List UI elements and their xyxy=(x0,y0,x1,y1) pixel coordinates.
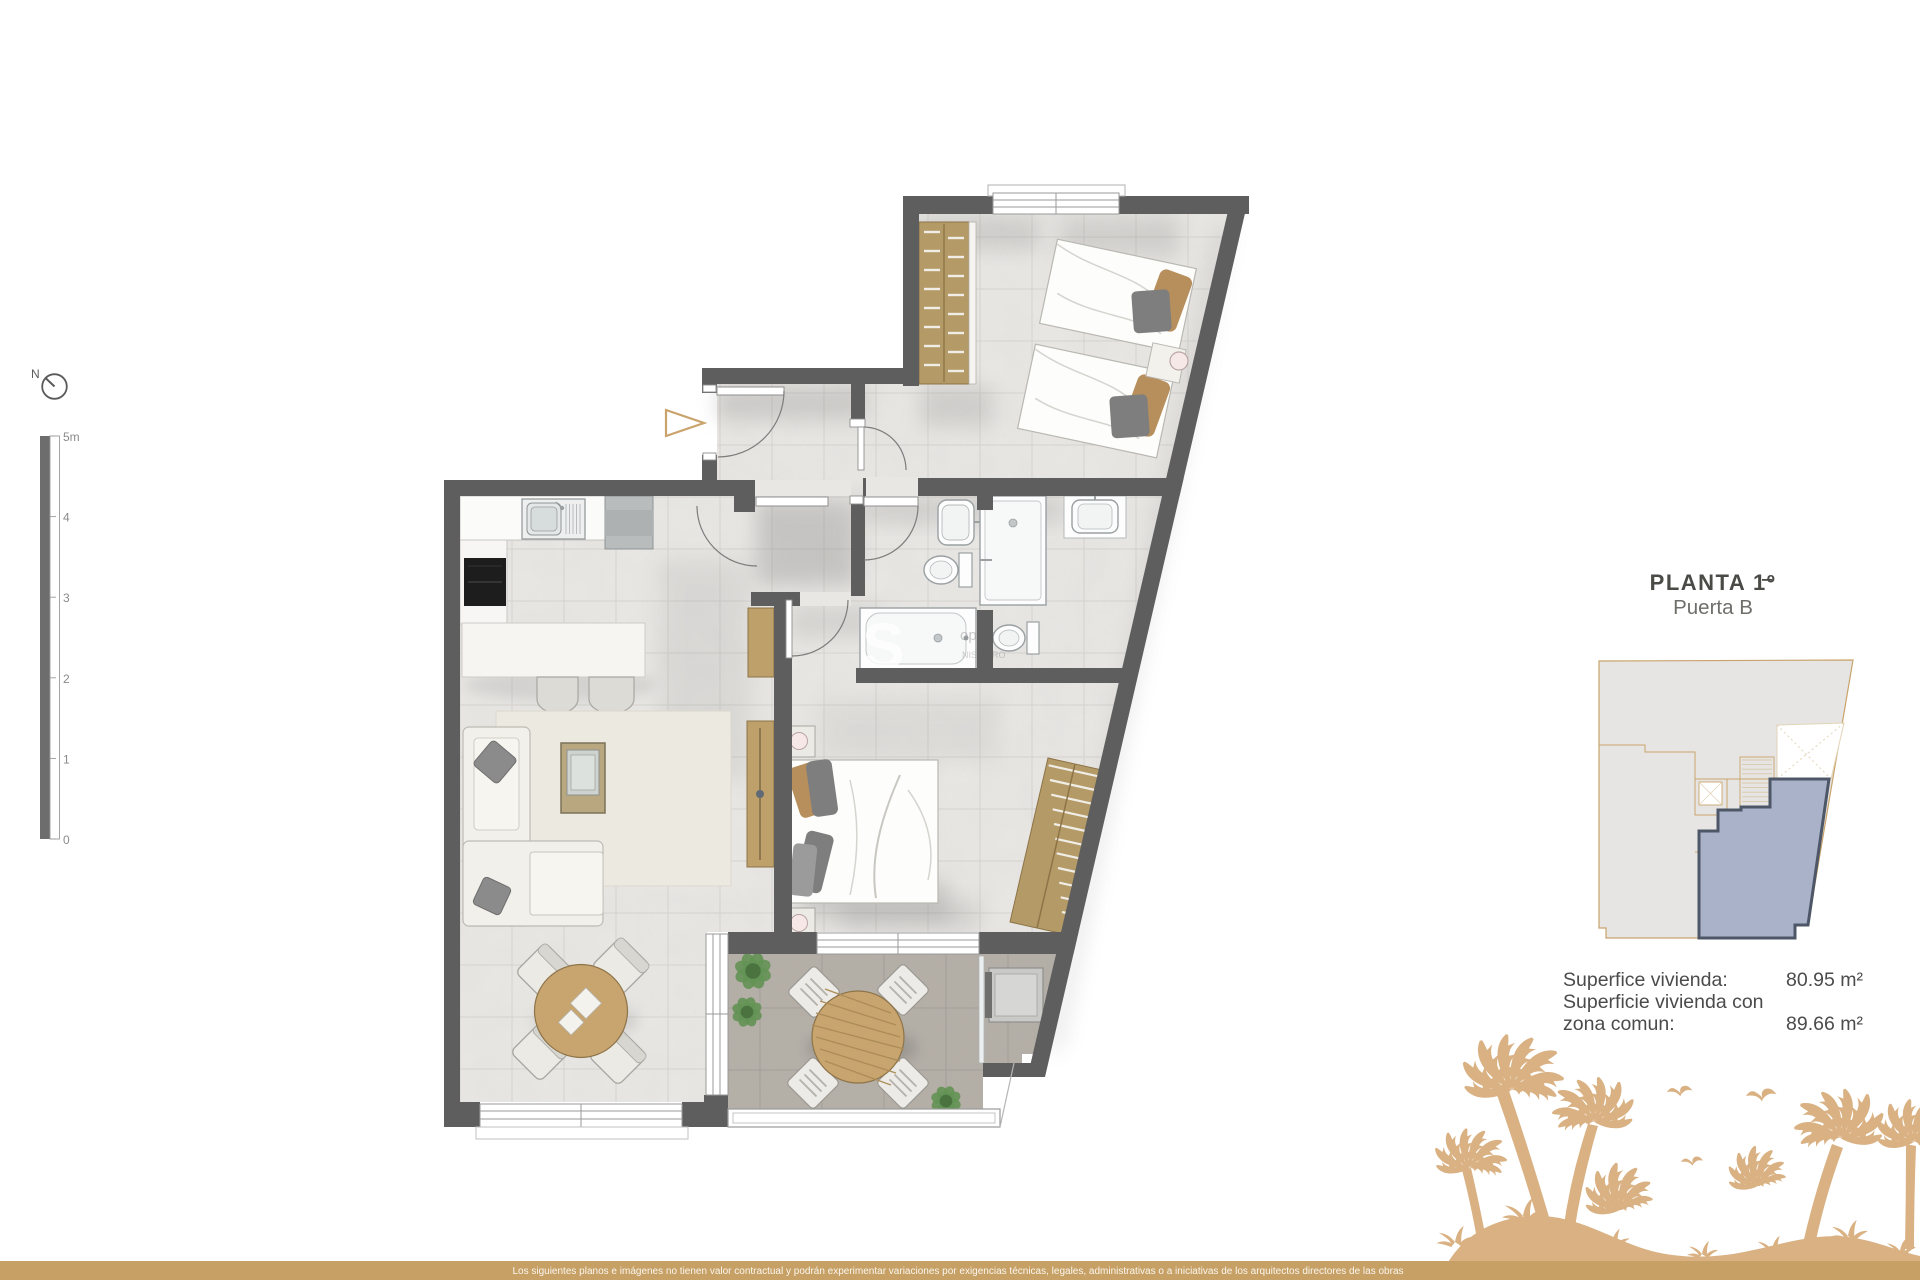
svg-text:zona comun:: zona comun: xyxy=(1563,1013,1675,1035)
svg-text:89.66 m²: 89.66 m² xyxy=(1786,1013,1863,1035)
svg-text:0: 0 xyxy=(63,833,70,847)
svg-text:3: 3 xyxy=(63,591,70,605)
svg-text:80.95 m²: 80.95 m² xyxy=(1786,969,1863,991)
svg-text:2: 2 xyxy=(63,672,70,686)
svg-text:4: 4 xyxy=(63,511,70,525)
svg-text:N: N xyxy=(31,367,40,381)
svg-text:Superficie vivienda con: Superficie vivienda con xyxy=(1563,991,1764,1013)
svg-text:Los siguientes planos e imágen: Los siguientes planos e imágenes no tien… xyxy=(512,1266,1403,1277)
svg-text:1: 1 xyxy=(63,752,70,766)
svg-text:Puerta B: Puerta B xyxy=(1673,596,1753,619)
svg-text:5m: 5m xyxy=(63,430,80,444)
svg-text:Superfice vivienda:: Superfice vivienda: xyxy=(1563,969,1728,991)
svg-text:PLANTA 1º: PLANTA 1º xyxy=(1650,570,1777,595)
